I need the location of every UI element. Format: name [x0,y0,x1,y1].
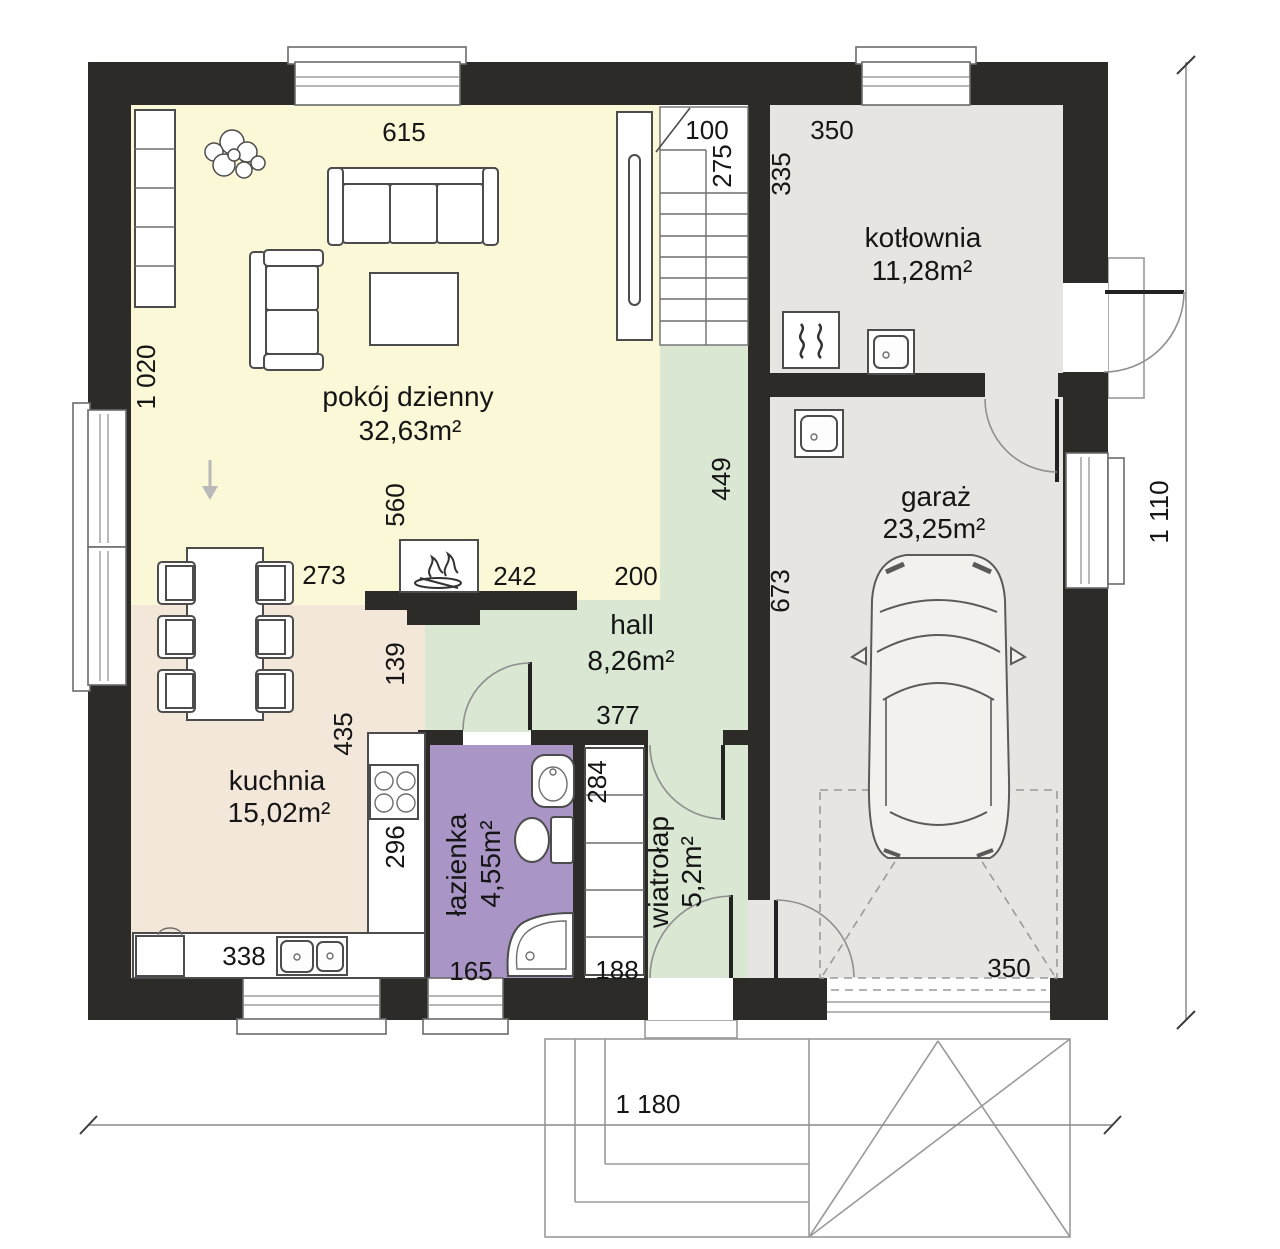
fridge [136,928,184,976]
wall-bath-top-right [531,730,648,745]
window-bath-bottom [423,978,508,1034]
window-kitchen-bottom [237,978,386,1034]
dim-hall-width: 377 [596,700,639,730]
sofa [328,168,498,245]
bath-sink [532,755,574,807]
dim-garage-left: 673 [765,569,795,612]
vestibule-garage-door-opening [748,900,770,978]
label-hall-area: 8,26m² [587,645,674,676]
coffee-table [370,273,458,345]
boiler-garage-door-opening [985,373,1058,397]
dim-bath-bottom: 165 [449,956,492,986]
side-door-landing [1108,258,1144,398]
label-boiler-name: kotłownia [865,222,982,253]
dim-living-width: 615 [382,117,425,147]
side-door-opening [1063,283,1108,372]
dim-closet-upper: 284 [582,760,612,803]
label-garage-name: garaż [901,481,971,512]
label-garage-area: 23,25m² [883,513,986,544]
dim-fireplace-right: 242 [493,561,536,591]
dim-stair-width: 100 [685,115,728,145]
label-vestibule-name: wiatrołap [643,816,674,929]
window-garage-right [1066,453,1124,588]
furnace [783,312,839,368]
wall-hall-vestibule-stub [723,730,748,745]
label-vestibule-area: 5,2m² [676,836,707,908]
dim-hall-top: 200 [614,561,657,591]
shelf-unit [135,110,175,307]
dim-closet-lower: 188 [595,955,638,985]
boiler-sink [868,330,914,374]
label-kitchen-area: 15,02m² [228,797,331,828]
window-living-left [73,403,126,691]
dining-table [187,548,263,720]
toilet [515,817,573,863]
label-living-area: 32,63m² [359,415,462,446]
dim-living-height: 1 020 [131,344,161,409]
label-boiler-area: 11,28m² [872,255,973,286]
label-hall-name: hall [610,609,654,640]
dim-total-height: 1 110 [1144,480,1174,543]
dim-boiler-width: 350 [810,115,853,145]
dim-dining: 273 [302,560,345,590]
kitchen-sink [277,937,347,975]
label-living-name: pokój dzienny [322,381,493,412]
dim-total-width: 1 180 [615,1089,680,1119]
wall-fireplace-notch [407,610,480,625]
dim-counter: 296 [380,825,410,868]
wall-fireplace [365,591,577,610]
radiator [617,112,652,340]
window-boiler-top [856,47,976,105]
dim-garage-door: 350 [987,953,1030,983]
kitchen-counter-bottom [133,928,425,978]
label-kitchen-name: kuchnia [229,765,326,796]
dim-kitchen-depth: 435 [328,712,358,755]
floor-plan-canvas: pokój dzienny 32,63m² kuchnia 15,02m² ha… [0,0,1280,1249]
floor-plan: pokój dzienny 32,63m² kuchnia 15,02m² ha… [0,0,1280,1249]
garage-door-opening [827,978,1050,1020]
terrace-outline [545,1039,1070,1237]
dim-fireplace-offset: 560 [380,483,410,526]
label-bath-name: łazienka [441,813,472,916]
entrance-step [645,1020,737,1038]
car [852,555,1025,858]
main-door-opening [648,978,733,1020]
dim-stair-depth: 275 [707,144,737,187]
dim-kitchen-bottom: 338 [222,941,265,971]
stove [370,765,418,819]
label-bath-area: 4,55m² [475,820,506,907]
fireplace [400,540,478,592]
driveway-marking [809,1039,1070,1237]
dim-boiler-depth: 335 [766,152,796,195]
garage-sink [795,410,843,457]
window-living-top [288,47,466,105]
armchair [250,250,323,370]
wall-hall-garage [748,105,770,978]
dim-hall-right: 449 [706,457,736,500]
dim-kitchen-hall: 139 [380,642,410,685]
